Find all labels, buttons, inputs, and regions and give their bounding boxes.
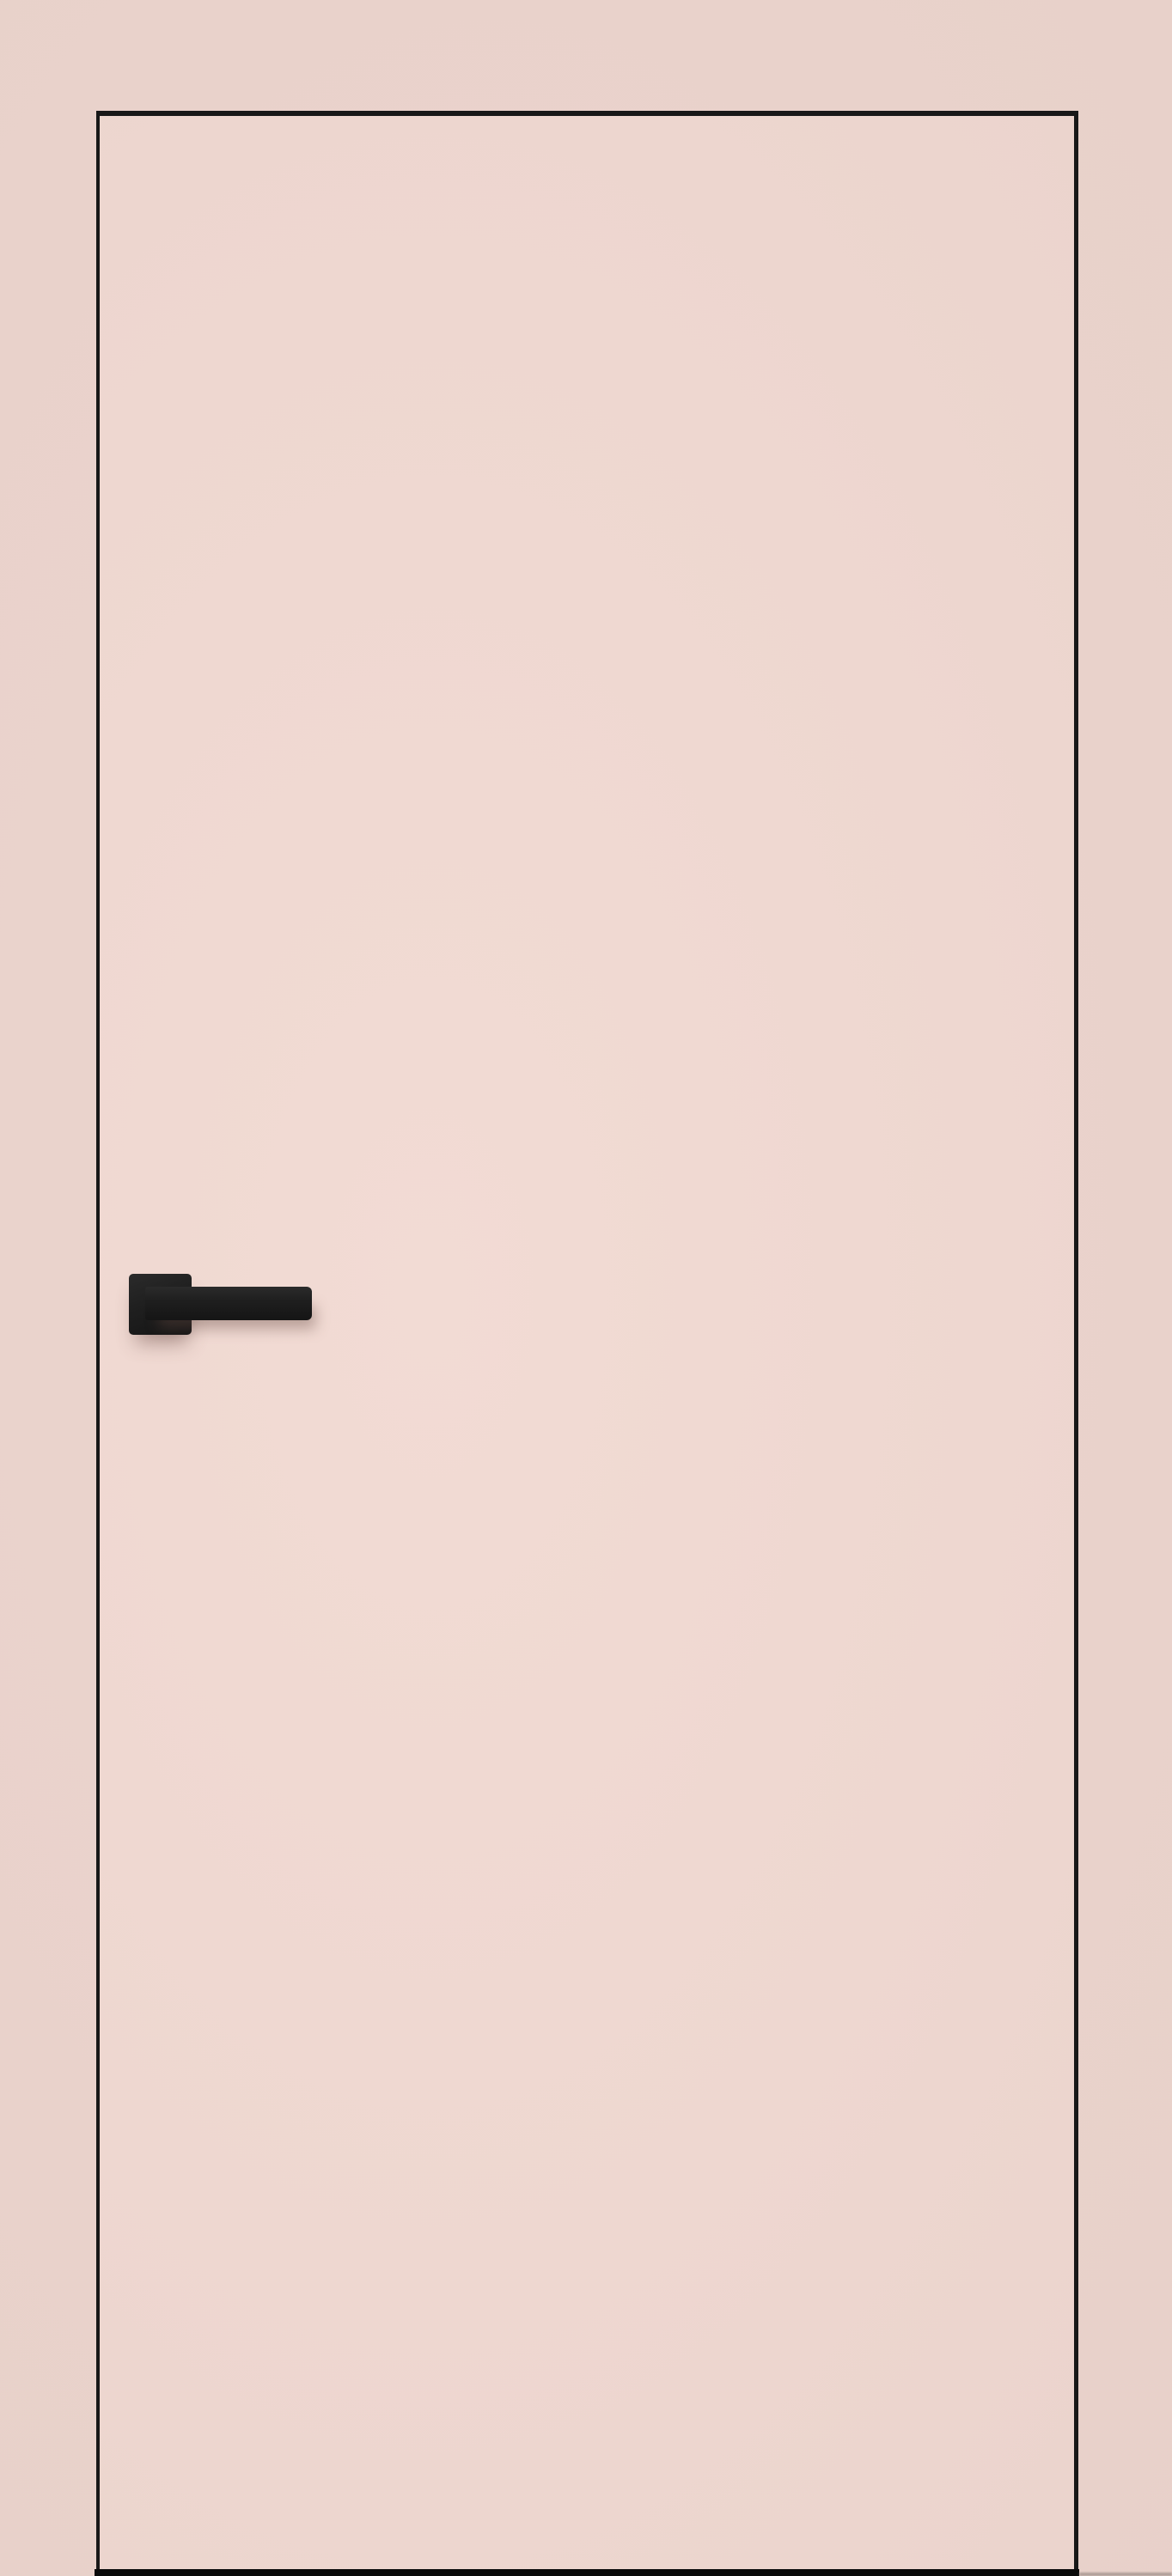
floor-gap [95,2569,1079,2576]
door-handle-lever [145,1287,312,1320]
floor-shadow [1079,2573,1172,2576]
scene-background [0,0,1172,2576]
door-panel [96,111,1078,2569]
